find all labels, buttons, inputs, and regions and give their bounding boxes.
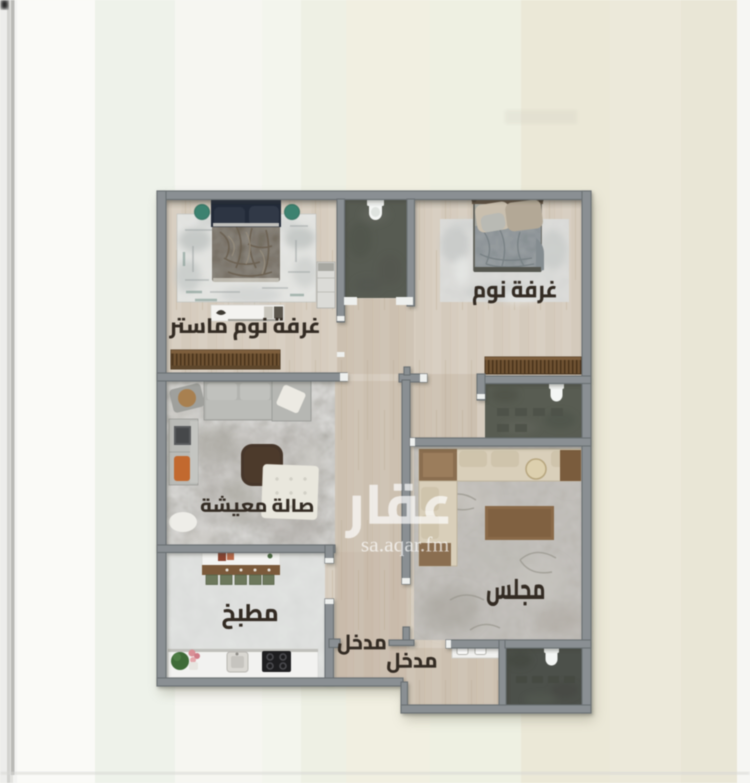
- svg-text:sa.aqar.fm: sa.aqar.fm: [361, 533, 450, 557]
